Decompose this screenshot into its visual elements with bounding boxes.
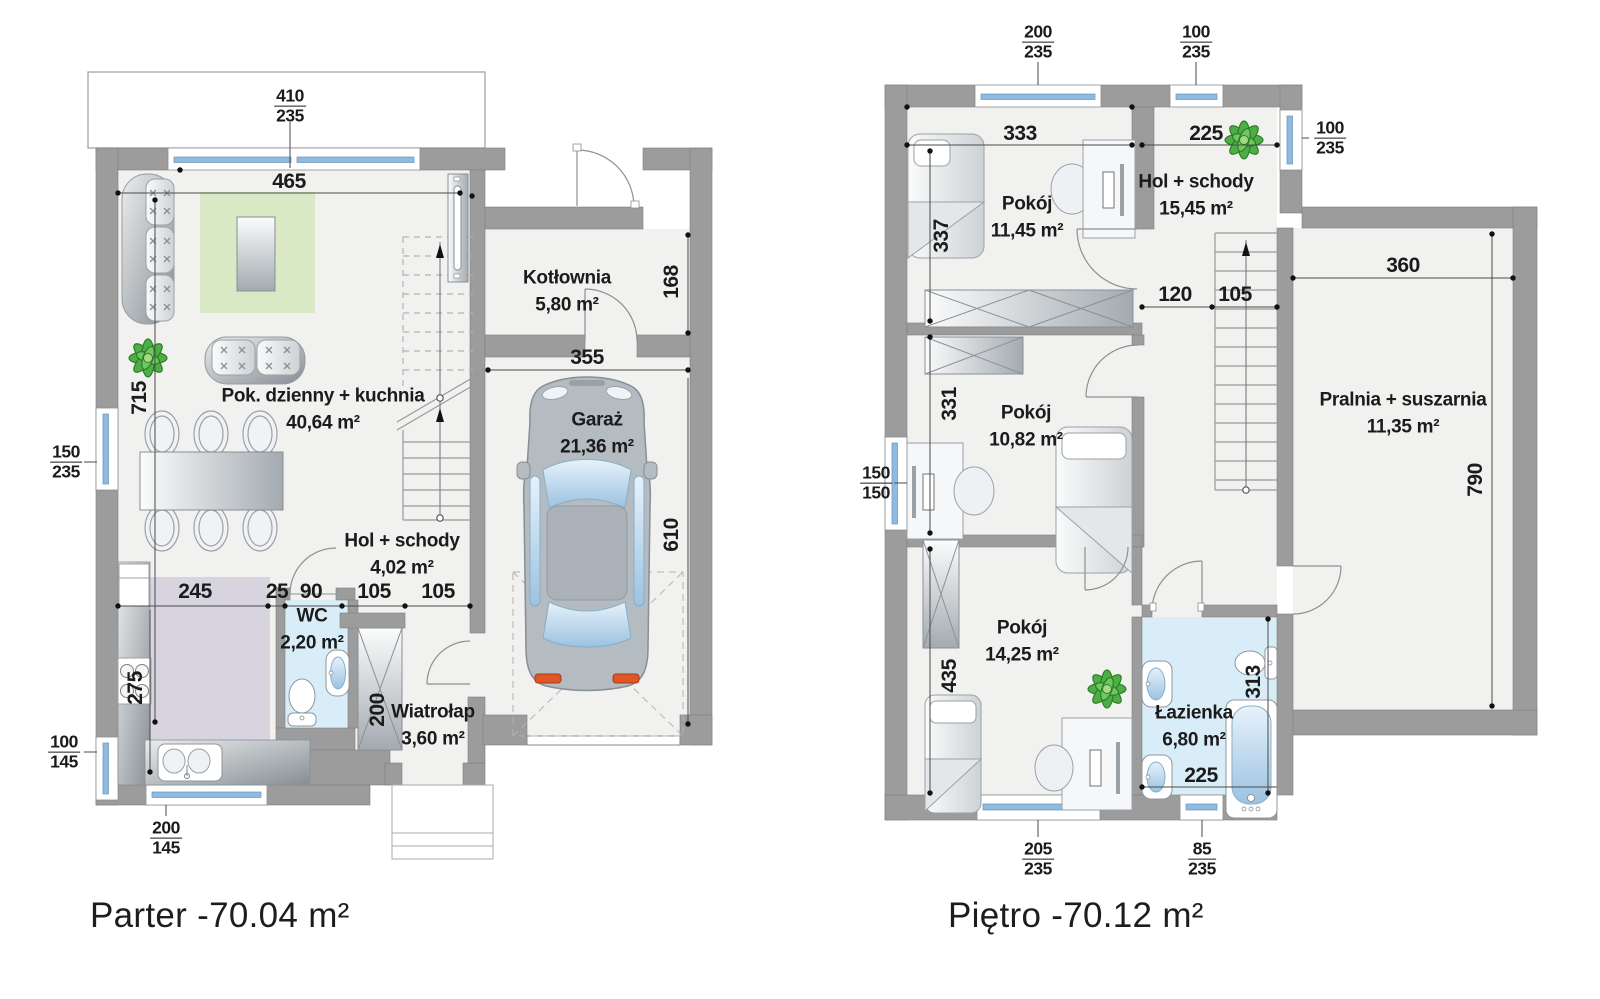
- window-label-corner-side: 100 145: [48, 733, 80, 772]
- small-sofa: [205, 337, 305, 384]
- window-label-corner-bottom: 200 145: [150, 819, 182, 858]
- window-label-right: 100 235: [1314, 119, 1346, 158]
- corner-sofa: [122, 174, 174, 324]
- dim-hall-width: 225: [1189, 122, 1223, 146]
- dining-table: [140, 452, 283, 510]
- room-label-garage: Garaż 21,36 m²: [560, 407, 634, 460]
- floorplan-page: 465 715 168 355 610 245 25 90 105 105 27…: [0, 0, 1600, 999]
- kitchen-sink: [158, 744, 222, 781]
- window-corner-bottom-pane: [152, 792, 261, 798]
- dim-gap: 25: [266, 580, 288, 604]
- window-label-bottom-large: 205 235: [1022, 840, 1054, 879]
- dim-room1-height: 337: [930, 219, 954, 253]
- dim-laundry-width: 360: [1386, 254, 1420, 278]
- room-label-boiler: Kotłownia 5,80 m²: [523, 265, 611, 318]
- window-top-small-pane: [1176, 94, 1217, 100]
- room-label-room3: Pokój 14,25 m²: [985, 615, 1059, 668]
- pietro-title: Piętro -70.12 m²: [948, 896, 1204, 936]
- window-side-pane: [103, 414, 109, 484]
- room-label-living: Pok. dzienny + kuchnia 40,64 m²: [222, 383, 425, 436]
- dim-room1-width: 333: [1003, 122, 1037, 146]
- plant-icon: [1088, 670, 1126, 708]
- fridge: [119, 564, 149, 606]
- dim-wc-width: 90: [300, 580, 322, 604]
- dim-stair-b: 105: [1218, 283, 1252, 307]
- wc-toilet: [288, 679, 316, 726]
- window-corner-side-pane: [103, 743, 109, 794]
- dim-hall-a: 105: [357, 580, 391, 604]
- room-label-laundry: Pralnia + suszarnia 11,35 m²: [1320, 387, 1487, 440]
- dim-living-width: 465: [272, 170, 306, 194]
- dim-closet-depth: 200: [366, 693, 390, 727]
- room-label-room1: Pokój 11,45 m²: [991, 191, 1064, 244]
- dim-bath-width: 225: [1184, 764, 1218, 788]
- window-label-top-small: 100 235: [1180, 23, 1212, 62]
- bathtub: [1226, 700, 1277, 818]
- window-right-pane: [1287, 116, 1293, 164]
- room-label-wc: WC 2,20 m²: [280, 603, 343, 656]
- dim-kitchen-run: 245: [178, 580, 212, 604]
- monitor: [923, 474, 934, 510]
- room-label-bath: Łazienka 6,80 m²: [1155, 700, 1233, 753]
- dim-garage-width: 355: [570, 346, 604, 370]
- dim-boiler-depth: 168: [660, 265, 684, 299]
- wardrobe-room3: [923, 540, 959, 648]
- pietro-plan: 333 225 337 120 105 360 331 790 435 313 …: [850, 6, 1590, 896]
- dim-laundry-height: 790: [1464, 463, 1488, 497]
- window-top-large-pane: [981, 94, 1095, 100]
- washbasin: [1142, 755, 1172, 799]
- room-label-hall: Hol + schody 4,02 m²: [344, 528, 459, 581]
- bed-room3: [925, 695, 981, 813]
- dim-living-height: 715: [128, 381, 152, 415]
- wc-washbasin: [326, 650, 349, 696]
- dim-stair-a: 120: [1158, 283, 1192, 307]
- parter-plan: 465 715 168 355 610 245 25 90 105 105 27…: [40, 10, 760, 880]
- coffee-table: [237, 217, 275, 291]
- window-terrace-pane: [174, 157, 291, 163]
- window-label-side: 150 150: [860, 464, 892, 503]
- window-bottom-small-pane: [1186, 804, 1217, 810]
- monitor: [1103, 172, 1114, 208]
- dim-garage-height: 610: [660, 518, 684, 552]
- entry-steps: [392, 785, 493, 859]
- window-label-top-large: 200 235: [1022, 23, 1054, 62]
- dim-room3-height: 435: [938, 659, 962, 693]
- room-label-hall: Hol + schody 15,45 m²: [1138, 169, 1253, 222]
- dim-kitchen-depth: 275: [124, 671, 148, 705]
- dim-bath-height: 313: [1242, 665, 1266, 699]
- dim-hall-b: 105: [421, 580, 455, 604]
- window-label-bottom-small: 85 235: [1188, 840, 1216, 879]
- room-label-vestibule: Wiatrołap 3,60 m²: [391, 699, 475, 752]
- bed-room2: [1056, 427, 1132, 573]
- radiator: [448, 174, 468, 282]
- window-label-side: 150 235: [50, 443, 82, 482]
- window-label-terrace: 410 235: [274, 87, 306, 126]
- parter-title: Parter -70.04 m²: [90, 896, 350, 936]
- room-label-room2: Pokój 10,82 m²: [989, 400, 1063, 453]
- dim-room2-height: 331: [938, 387, 962, 421]
- plant-icon: [1225, 121, 1263, 159]
- monitor: [1090, 750, 1101, 786]
- plant-icon: [129, 339, 167, 377]
